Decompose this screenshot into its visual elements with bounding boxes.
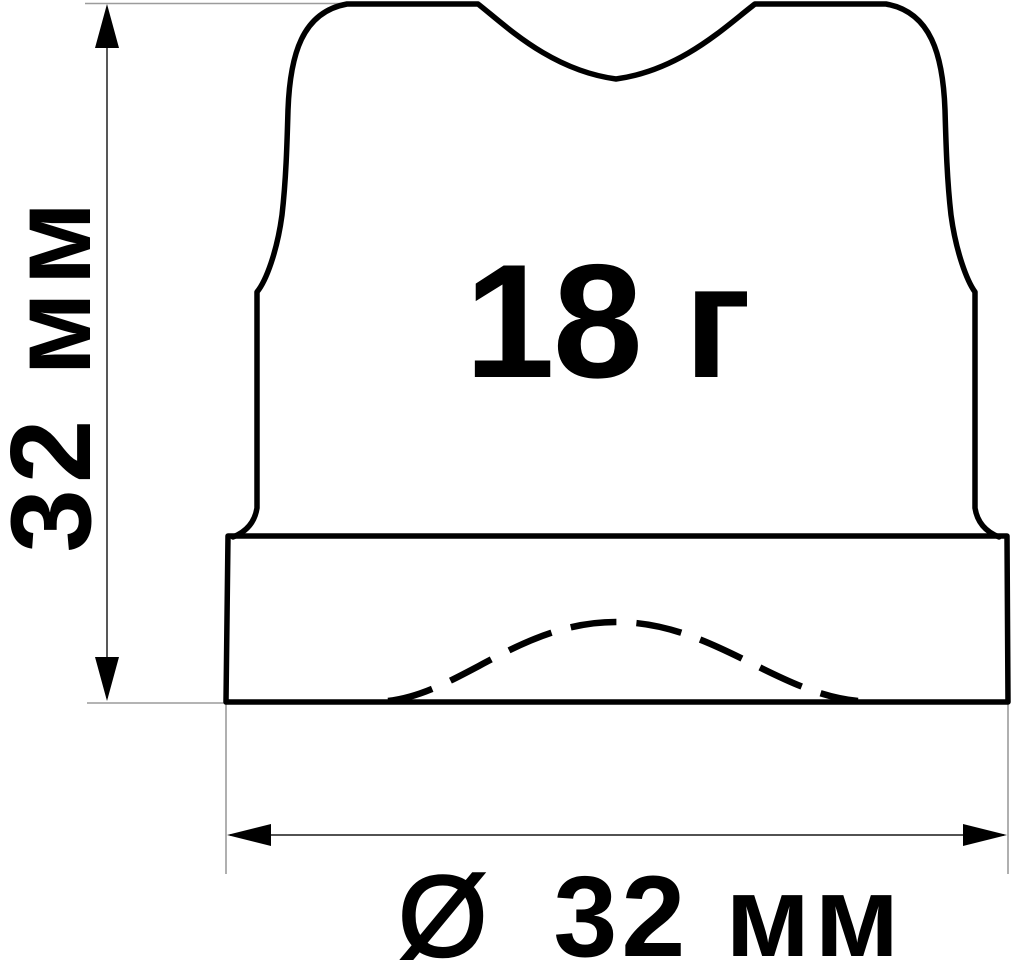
weight-label: 18 г — [465, 231, 750, 412]
technical-drawing-page: 32 мм 18 г Ø 32 мм — [0, 0, 1014, 961]
height-dimension: 32 мм — [0, 4, 119, 701]
extension-lines — [85, 4, 1008, 875]
diameter-dimension-label: Ø 32 мм — [398, 853, 903, 961]
object-base-outline — [226, 536, 1008, 702]
height-arrow-down-icon — [95, 657, 119, 701]
diameter-symbol: Ø — [398, 853, 491, 961]
diameter-value: 32 мм — [553, 853, 903, 961]
technical-drawing: 32 мм 18 г Ø 32 мм — [0, 0, 1014, 961]
diameter-arrow-left-icon — [227, 824, 271, 846]
height-arrow-up-icon — [95, 4, 119, 48]
hidden-cavity-dashed-line — [388, 622, 858, 701]
height-dimension-label: 32 мм — [0, 195, 115, 552]
diameter-dimension: Ø 32 мм — [227, 824, 1007, 961]
diameter-arrow-right-icon — [963, 824, 1007, 846]
